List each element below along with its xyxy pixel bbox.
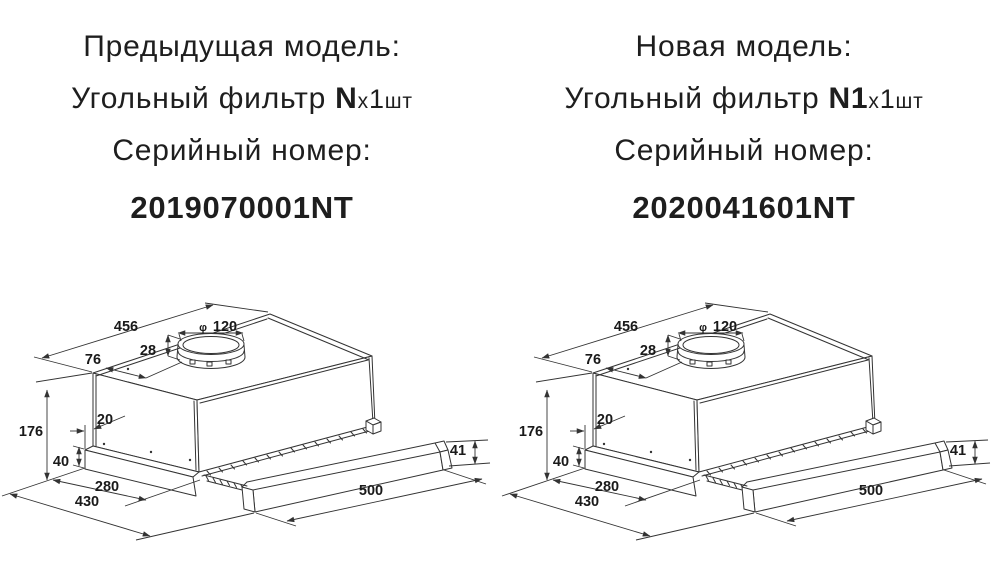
dim-label-120: 120 (213, 319, 237, 335)
hood-technical-drawing: 456 φ 120 28 76 176 20 40 280 430 500 41 (500, 290, 1000, 572)
dim-label-280: 280 (595, 479, 619, 495)
dim-label-176: 176 (519, 424, 543, 440)
new-model-filter-line: Угольный фильтрN1х1шт (502, 82, 986, 116)
mounting-bracket (366, 418, 381, 434)
filter-qty-unit: шт (385, 90, 413, 113)
filter-label: Угольный фильтр (564, 82, 819, 115)
dim-label-76: 76 (585, 352, 601, 368)
new-model-title: Новая модель: (502, 30, 986, 64)
dim-label-20: 20 (597, 412, 613, 428)
previous-model-title: Предыдущая модель: (0, 30, 484, 64)
dim-label-40: 40 (553, 454, 569, 470)
dim-label-40: 40 (53, 454, 69, 470)
dim-label-456: 456 (114, 319, 138, 335)
hood-drawing-previous-model: 456 φ 120 28 76 176 20 40 280 430 500 41 (0, 290, 500, 572)
dim-label-28: 28 (640, 343, 656, 359)
hood-filter-infographic: Предыдущая модель: Угольный фильтрNх1шт … (0, 0, 1000, 572)
previous-model-filter-line: Угольный фильтрNх1шт (0, 82, 484, 116)
visor-left-end-cap (242, 487, 255, 512)
previous-serial-label: Серийный номер: (0, 134, 484, 168)
dim-label-500: 500 (359, 483, 383, 499)
filter-label: Угольный фильтр (71, 82, 326, 115)
dim-label-120: 120 (713, 319, 737, 335)
filter-qty-x: х (358, 90, 369, 113)
mounting-bracket (866, 418, 881, 434)
dim-label-41: 41 (450, 443, 466, 459)
filter-qty-count: 1 (880, 84, 896, 114)
new-serial-number: 2020041601NT (502, 190, 986, 226)
dim-label-280: 280 (95, 479, 119, 495)
dim-label-456: 456 (614, 319, 638, 335)
dim-label-28: 28 (140, 343, 156, 359)
dim-label-20: 20 (97, 412, 113, 428)
new-serial-label: Серийный номер: (502, 134, 986, 168)
filter-qty-x: х (868, 90, 879, 113)
dim-label-76: 76 (85, 352, 101, 368)
dim-label-500: 500 (859, 483, 883, 499)
filter-qty-count: 1 (369, 84, 385, 114)
previous-serial-number: 2019070001NT (0, 190, 484, 226)
dim-label-176: 176 (19, 424, 43, 440)
left-rail-hatching (206, 476, 244, 490)
left-rail-hatching (706, 476, 744, 490)
filter-model-code: N (335, 82, 357, 115)
filter-qty-unit: шт (896, 90, 924, 113)
visor-left-end-cap (742, 487, 755, 512)
dim-label-dia-symbol: φ (199, 322, 207, 334)
dim-label-dia-symbol: φ (699, 322, 707, 334)
dim-label-430: 430 (575, 494, 599, 510)
dim-label-430: 430 (75, 494, 99, 510)
hood-drawing-new-model: 456 φ 120 28 76 176 20 40 280 430 500 41 (500, 290, 1000, 572)
filter-model-code: N1 (828, 82, 868, 115)
dim-label-41: 41 (950, 443, 966, 459)
hood-technical-drawing: 456 φ 120 28 76 176 20 40 280 430 500 41 (0, 290, 500, 572)
